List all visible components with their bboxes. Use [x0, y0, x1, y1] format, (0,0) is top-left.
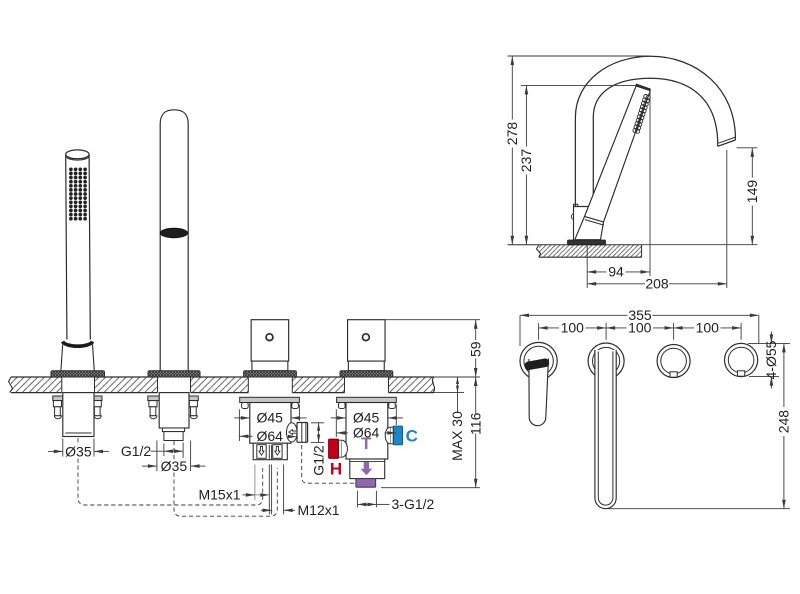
svg-text:C: C [406, 426, 418, 445]
svg-text:M12x1: M12x1 [298, 502, 340, 518]
svg-text:MAX 30: MAX 30 [449, 411, 465, 461]
svg-text:3-G1/2: 3-G1/2 [392, 496, 435, 512]
svg-text:248: 248 [776, 410, 792, 434]
svg-text:M15x1: M15x1 [198, 487, 240, 503]
svg-text:59: 59 [467, 341, 483, 357]
svg-text:100: 100 [561, 320, 585, 336]
svg-text:237: 237 [518, 149, 534, 173]
svg-text:278: 278 [504, 122, 520, 146]
svg-text:Ø45: Ø45 [256, 410, 283, 426]
svg-text:Ø64: Ø64 [256, 428, 283, 444]
svg-text:116: 116 [467, 412, 483, 435]
svg-text:208: 208 [645, 276, 669, 292]
svg-text:100: 100 [696, 320, 720, 336]
svg-text:Ø35: Ø35 [65, 443, 92, 459]
svg-text:T: T [361, 434, 372, 453]
svg-text:149: 149 [744, 180, 760, 204]
svg-text:Ø35: Ø35 [161, 458, 188, 474]
svg-text:H: H [330, 460, 342, 479]
svg-text:G1/2: G1/2 [121, 443, 152, 459]
svg-text:94: 94 [608, 264, 624, 280]
svg-text:G1/2: G1/2 [310, 445, 326, 476]
svg-text:100: 100 [628, 320, 652, 336]
svg-text:4-Ø55: 4-Ø55 [763, 340, 779, 379]
svg-text:Ø45: Ø45 [353, 410, 380, 426]
